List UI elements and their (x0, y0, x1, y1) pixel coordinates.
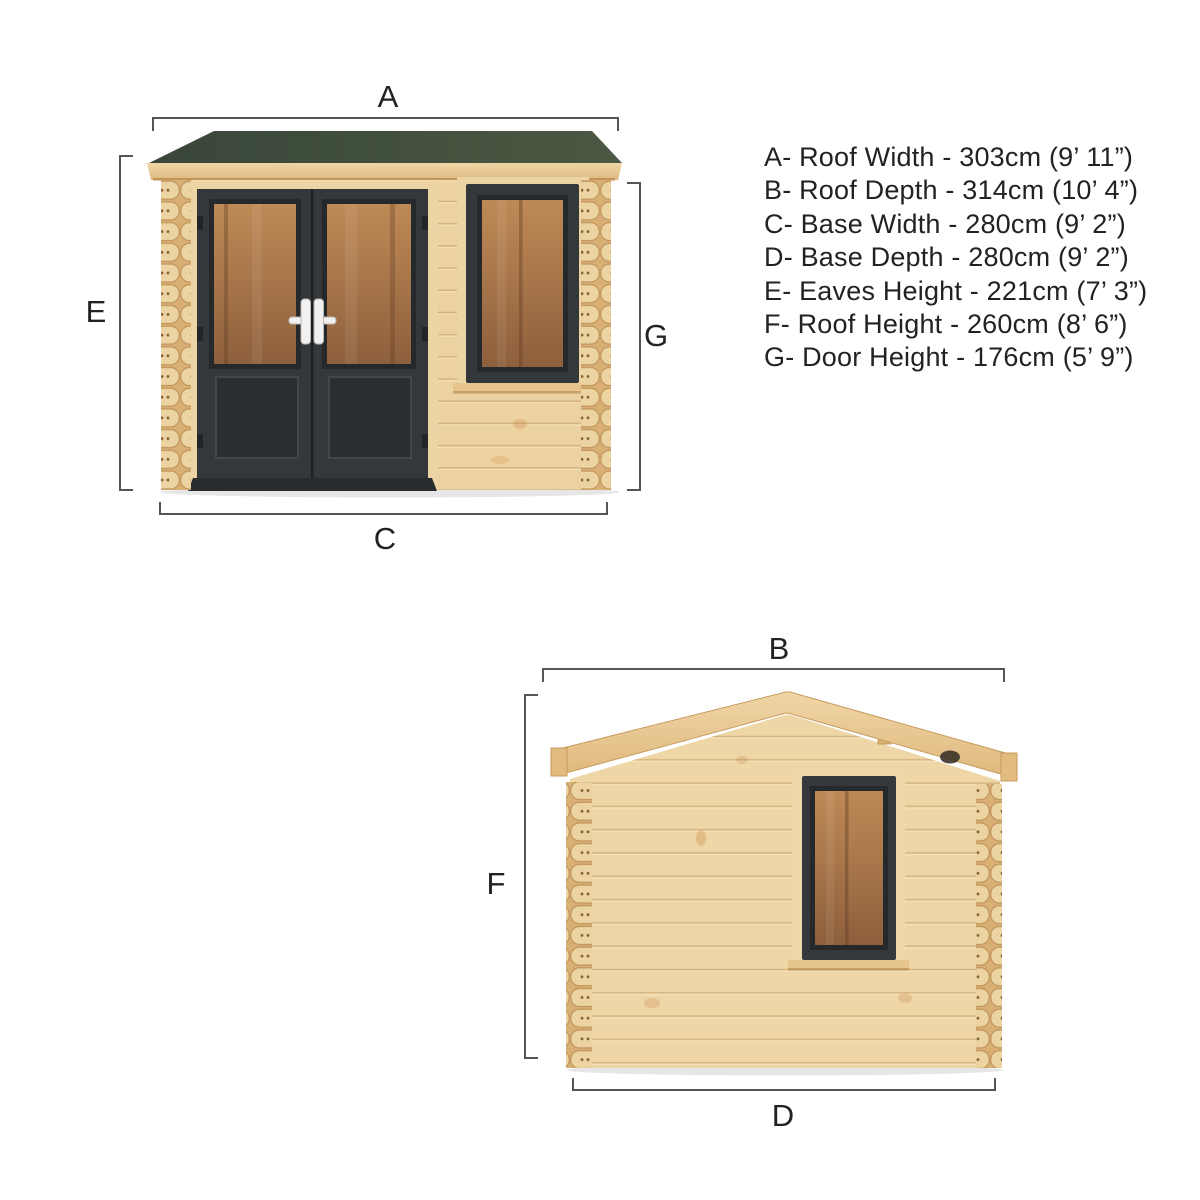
glass-reflection (826, 791, 834, 945)
dim-label-g: G (644, 318, 668, 353)
sill-shadow (453, 391, 592, 394)
side-roof-left-fascia-tip (551, 748, 567, 776)
dim-line-f (525, 695, 538, 1058)
front-window (453, 177, 592, 394)
glass-reflection (252, 204, 262, 364)
dim-label-e: E (86, 294, 107, 329)
wood-knot (736, 756, 748, 764)
front-left-log-corner (161, 180, 191, 490)
dim-label-c: C (374, 521, 396, 556)
hinge (422, 434, 428, 448)
door-right-panel (329, 377, 411, 458)
legend-item: C- Base Width - 280cm (9’ 2”) (764, 208, 1147, 241)
side-window-sill (788, 960, 909, 969)
glass-reflection (497, 200, 506, 367)
door-left-panel (216, 377, 298, 458)
glass-reflection (845, 791, 849, 945)
side-right-log-corner (976, 784, 1002, 1068)
legend-item: B- Roof Depth - 314cm (10’ 4”) (764, 174, 1147, 207)
dim-line-e (120, 156, 133, 490)
hinge (422, 216, 428, 230)
wood-knot (696, 830, 706, 846)
dim-label-b: B (769, 631, 790, 666)
side-window (788, 768, 909, 971)
sill-shadow (788, 968, 909, 971)
glass-reflection (224, 204, 228, 364)
legend-item: G- Door Height - 176cm (5’ 9”) (764, 341, 1147, 374)
glass-reflection (390, 204, 395, 364)
hinge (197, 434, 203, 448)
dim-line-d (573, 1078, 995, 1090)
dim-label-a: A (378, 79, 399, 114)
hinge (422, 327, 428, 341)
glass-reflection (519, 200, 523, 367)
wood-knot (491, 456, 509, 464)
hinge (197, 327, 203, 341)
door-center-gap (311, 189, 313, 478)
side-elevation: B F D (487, 631, 1017, 1133)
wood-knot (513, 419, 527, 429)
door-threshold (188, 478, 437, 491)
front-right-log-corner (581, 180, 611, 490)
side-roof-right-fascia-tip (1001, 753, 1017, 781)
dim-label-d: D (772, 1098, 794, 1133)
dim-line-a (153, 118, 618, 131)
door-right (322, 199, 416, 458)
dim-line-b (543, 669, 1004, 682)
dim-line-g (627, 183, 640, 490)
front-window-sill (453, 383, 592, 392)
dim-label-f: F (487, 866, 506, 901)
front-roof-felt (149, 131, 622, 163)
side-left-log-corner (566, 782, 592, 1068)
glass-reflection (345, 204, 357, 364)
legend-item: F- Roof Height - 260cm (8’ 6”) (764, 308, 1147, 341)
legend: A- Roof Width - 303cm (9’ 11”) B- Roof D… (764, 141, 1147, 375)
door-right-glass (327, 204, 411, 364)
dim-line-c (160, 502, 607, 514)
dimension-diagram: A E C G (0, 0, 1200, 1200)
side-window-glass (815, 791, 883, 945)
front-elevation: A E C G (86, 79, 668, 556)
legend-item: A- Roof Width - 303cm (9’ 11”) (764, 141, 1147, 174)
legend-item: D- Base Depth - 280cm (9’ 2”) (764, 241, 1147, 274)
hinge (197, 216, 203, 230)
door-left (209, 199, 301, 458)
legend-item: E- Eaves Height - 221cm (7’ 3”) (764, 275, 1147, 308)
roof-knot-hole (940, 751, 960, 764)
wood-knot (898, 993, 912, 1003)
side-wall (570, 714, 1000, 1068)
wood-knot (644, 998, 660, 1008)
